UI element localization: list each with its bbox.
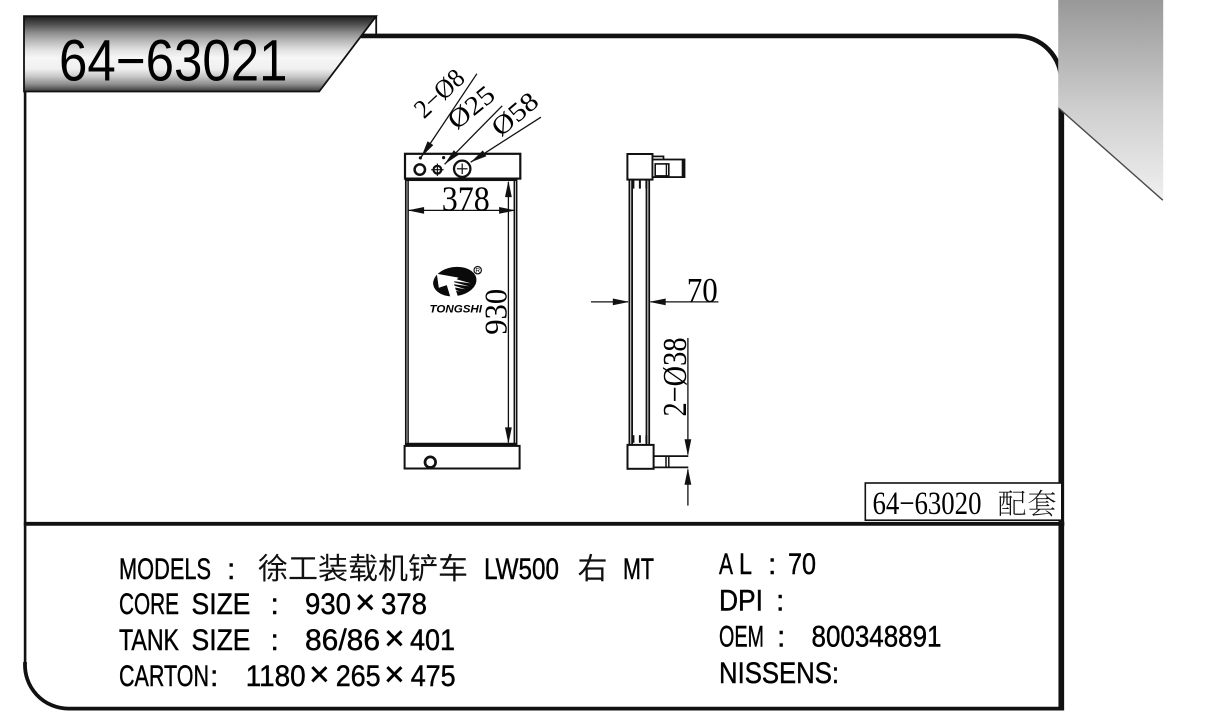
svg-text:A: A bbox=[719, 548, 733, 581]
svg-text:×: × bbox=[384, 655, 404, 694]
svg-text:86/86: 86/86 bbox=[305, 624, 380, 657]
svg-text::: : bbox=[768, 548, 776, 581]
svg-text:930: 930 bbox=[478, 289, 514, 335]
svg-text:70: 70 bbox=[687, 271, 718, 310]
svg-text::: : bbox=[776, 585, 784, 618]
svg-text:2−Ø38: 2−Ø38 bbox=[657, 338, 694, 417]
svg-text:265: 265 bbox=[336, 660, 381, 693]
svg-text:SIZE: SIZE bbox=[192, 624, 251, 657]
svg-text:SIZE: SIZE bbox=[192, 588, 251, 621]
svg-text:64−63021: 64−63021 bbox=[59, 29, 288, 94]
svg-text:378: 378 bbox=[381, 588, 427, 621]
svg-text::: : bbox=[271, 588, 279, 621]
svg-text:1180: 1180 bbox=[246, 660, 306, 693]
svg-text:70: 70 bbox=[788, 548, 816, 581]
svg-text::: : bbox=[210, 660, 218, 693]
svg-text:×: × bbox=[309, 655, 329, 694]
svg-text:×: × bbox=[355, 583, 375, 622]
svg-text::: : bbox=[227, 553, 235, 586]
svg-text:401: 401 bbox=[410, 624, 455, 657]
svg-text:R: R bbox=[475, 268, 480, 275]
svg-text:DPI: DPI bbox=[719, 585, 763, 618]
svg-text:930: 930 bbox=[305, 588, 351, 621]
svg-text:378: 378 bbox=[442, 181, 490, 219]
svg-text:TANK: TANK bbox=[119, 624, 179, 657]
svg-text:MT: MT bbox=[623, 553, 654, 586]
svg-text:×: × bbox=[384, 619, 404, 658]
svg-text:TONGSHI: TONGSHI bbox=[430, 303, 484, 315]
svg-text::: : bbox=[777, 621, 785, 654]
svg-text:CORE: CORE bbox=[119, 588, 179, 621]
svg-text::: : bbox=[271, 624, 279, 657]
svg-text:MODELS: MODELS bbox=[119, 553, 211, 586]
svg-text:800348891: 800348891 bbox=[812, 621, 942, 654]
svg-text:CARTON: CARTON bbox=[119, 660, 209, 693]
svg-text:LW500: LW500 bbox=[484, 553, 559, 586]
svg-text:OEM: OEM bbox=[719, 621, 764, 654]
svg-text:L: L bbox=[739, 548, 752, 581]
svg-text:NISSENS:: NISSENS: bbox=[719, 657, 839, 690]
svg-text:475: 475 bbox=[411, 660, 456, 693]
svg-text:64−63020: 64−63020 bbox=[873, 486, 982, 522]
